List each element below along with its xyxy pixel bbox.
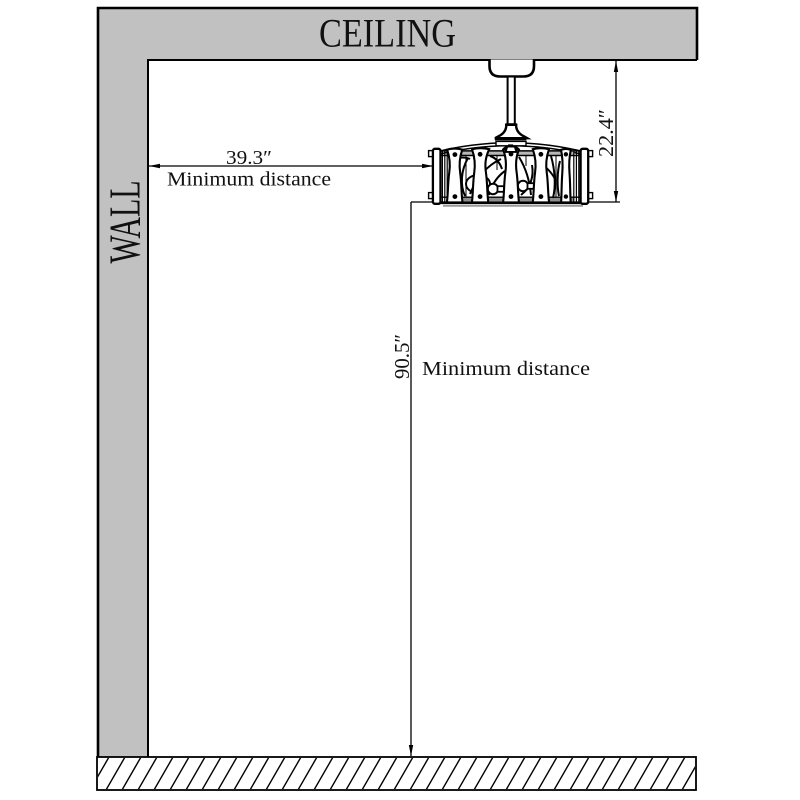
svg-text:Minimum distance: Minimum distance — [422, 358, 590, 380]
svg-text:22.4″: 22.4″ — [594, 109, 618, 157]
svg-text:CEILING: CEILING — [319, 11, 456, 56]
svg-text:Minimum distance: Minimum distance — [167, 169, 331, 191]
svg-text:39.3″: 39.3″ — [226, 147, 272, 169]
svg-text:90.5″: 90.5″ — [390, 334, 414, 379]
svg-text:WALL: WALL — [101, 181, 150, 264]
